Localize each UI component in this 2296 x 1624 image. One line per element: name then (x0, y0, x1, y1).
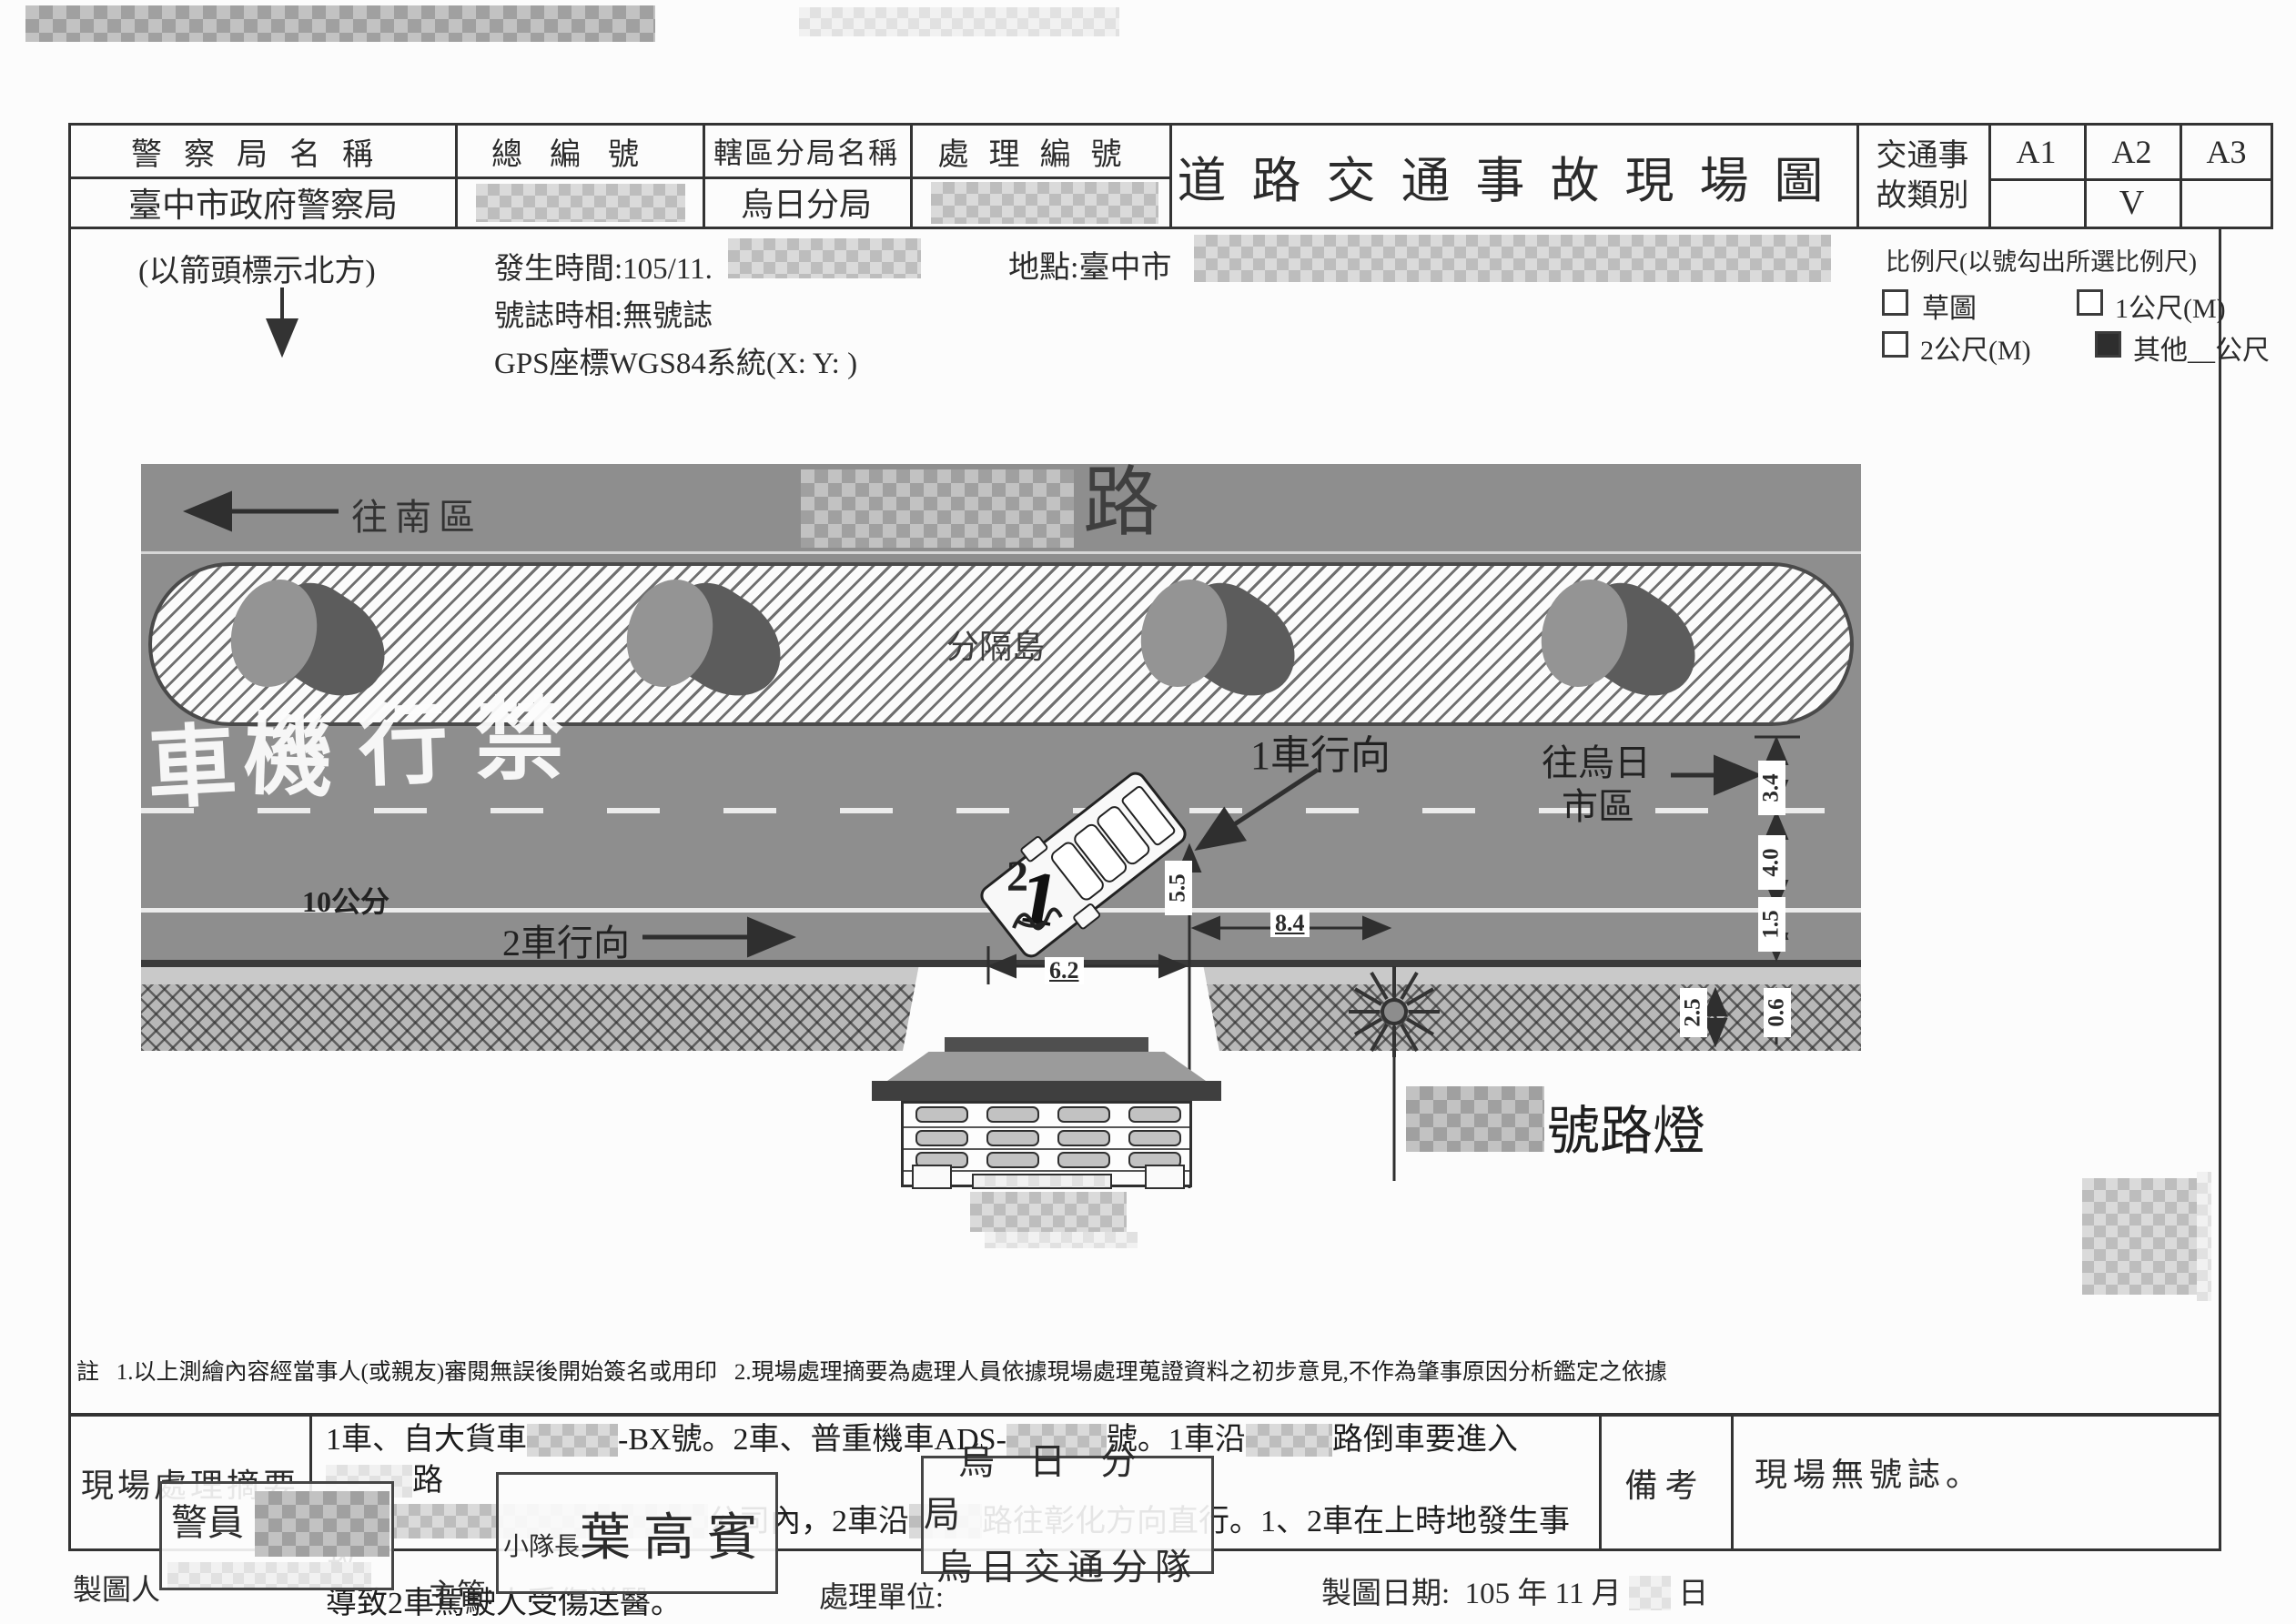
north-note: (以箭頭標示北方) (138, 246, 376, 290)
dim-3-4: 3.4 (1758, 761, 1785, 815)
north-arrow-icon (259, 286, 305, 369)
drafter-label: 製圖人 (73, 1567, 160, 1609)
drawing-date: 製圖日期: 105 年 11 月 日 (1321, 1569, 1708, 1612)
building-window (1057, 1106, 1110, 1123)
form-title: 道路交通事故現場圖 (1169, 126, 1856, 227)
seal-redaction-edge (2197, 1172, 2211, 1301)
lamp-starburst-icon (1349, 966, 1440, 1057)
building-window (1128, 1106, 1181, 1123)
building-sign-redaction (972, 1174, 1112, 1189)
note-item-2: 2.現場處理摘要為處理人員依據現場處理蒐證資料之初步意見,不作為肇事原因分析鑑定… (734, 1360, 1667, 1385)
signal-phase: 號誌時相:無號誌 (494, 291, 713, 335)
note-prefix: 註 (76, 1360, 99, 1385)
scale-sketch-checkbox (1882, 289, 1908, 316)
accident-scene-form: 警察局名稱 總編號 轄區分局名稱 處理編號 臺中市政府警察局 烏日分局 道路交通… (0, 0, 2296, 1624)
to-wuri-label-line2: 市區 (1562, 777, 1634, 830)
drafter-stamp-redaction-2 (167, 1562, 371, 1588)
lamp-label: 號路燈 (1547, 1088, 1705, 1165)
building-window (986, 1106, 1039, 1123)
building-roof-ridge (945, 1037, 1148, 1054)
scale-other-checkbox (2095, 331, 2121, 358)
building-window (1057, 1130, 1110, 1146)
note-item-1: 1.以上測繪內容經當事人(或親友)審閱無誤後開始簽名或用印 (116, 1360, 717, 1385)
dim-6-2: 6.2 (1045, 957, 1084, 984)
building-window (986, 1152, 1039, 1168)
occurrence-time: 發生時間:105/11. (494, 244, 713, 287)
seal-redaction (2082, 1178, 2197, 1295)
company-name-redaction (970, 1192, 1127, 1232)
scale-1m-checkbox (2077, 289, 2103, 316)
vehicle-2-scribble-icon (1008, 893, 1067, 937)
supervisor-stamp-name: 葉高賓 (580, 1497, 771, 1570)
police-bureau-value: 臺中市政府警察局 (71, 177, 455, 227)
branch-name-label: 轄區分局名稱 (703, 126, 910, 177)
building-window (986, 1130, 1039, 1146)
building-window (1128, 1130, 1181, 1146)
scale-2m-checkbox (1882, 331, 1908, 358)
veh2-direction-label: 2車行向 (502, 913, 630, 966)
top-left-redaction (25, 5, 655, 42)
note-line: 註 1.以上測繪內容經當事人(或親友)審閱無誤後開始簽名或用印 2.現場處理摘要… (76, 1354, 1667, 1387)
ten-cm-label: 10公分 (302, 879, 389, 921)
unit-stamp-line2: 烏日交通分隊 (936, 1541, 1199, 1594)
dim-8-4: 8.4 (1270, 910, 1310, 937)
building-floor-line (904, 1148, 1189, 1150)
case-no-redaction (931, 182, 1158, 224)
drafter-stamp-rank: 警員 (171, 1493, 244, 1546)
scale-title: 比例尺(以號勾出所選比例尺) (1886, 242, 2197, 277)
scale-sketch-label: 草圖 (1922, 286, 1977, 326)
accident-category-label: 交通事故類別 (1856, 126, 1988, 227)
building-window (915, 1130, 968, 1146)
time-redaction (728, 238, 921, 278)
dim-1-5: 1.5 (1758, 897, 1785, 952)
company-name-redaction-2 (985, 1232, 1138, 1248)
scale-2m-label: 2公尺(M) (1920, 328, 2031, 368)
scale-1m-label: 1公尺(M) (2115, 286, 2226, 326)
location-redaction (1194, 235, 1831, 282)
supervisor-label: 主管: (428, 1571, 494, 1613)
remark-label: 備考 (1599, 1417, 1731, 1549)
drawing-date-value: 105 年 11 月 (1465, 1578, 1622, 1610)
drawing-date-day-redaction (1629, 1576, 1671, 1610)
police-bureau-label: 警察局名稱 (71, 126, 455, 177)
drawing-date-suffix: 日 (1678, 1578, 1708, 1610)
serial-no-redaction (476, 184, 685, 222)
building-roof-slope (887, 1052, 1206, 1081)
header-table: 警察局名稱 總編號 轄區分局名稱 處理編號 臺中市政府警察局 烏日分局 道路交通… (68, 123, 2273, 229)
building-door (912, 1165, 952, 1189)
serial-no-label: 總編號 (455, 126, 703, 177)
building-window (915, 1106, 968, 1123)
top-center-redaction (799, 7, 1119, 36)
category-a2-label: A2 (2084, 126, 2180, 178)
branch-name-value: 烏日分局 (703, 177, 910, 227)
gps-coordinates: GPS座標WGS84系統(X: Y: ) (494, 338, 857, 382)
lamp-number-redaction (1406, 1086, 1544, 1152)
drafter-stamp-name-redaction (255, 1491, 389, 1557)
dim-5-5: 5.5 (1165, 861, 1192, 915)
dim-0-6: 0.6 (1764, 988, 1791, 1037)
category-a1-label: A1 (1988, 126, 2084, 178)
case-no-label: 處理編號 (910, 126, 1169, 177)
summary-table-top-border (68, 1413, 2221, 1417)
category-a2-mark: V (2084, 178, 2180, 227)
remark-value: 現場無號誌。 (1755, 1448, 1984, 1496)
processing-unit-label: 處理單位: (819, 1574, 944, 1616)
veh1-direction-label: 1車行向 (1250, 722, 1391, 781)
building-window (1057, 1152, 1110, 1168)
supervisor-stamp-rank: 小隊長 (503, 1527, 580, 1563)
scale-other-label: 其他__公尺 (2133, 328, 2270, 368)
dim-4-0: 4.0 (1758, 835, 1785, 890)
building-door (1145, 1165, 1185, 1189)
building-floor-line (904, 1126, 1189, 1128)
drafter-stamp: 警員 (159, 1481, 394, 1590)
supervisor-stamp: 小隊長 葉高賓 (496, 1472, 778, 1594)
dim-2-5: 2.5 (1680, 988, 1707, 1037)
veh1-direction-arrow-icon (1201, 770, 1318, 846)
category-a3-label: A3 (2180, 126, 2273, 178)
unit-stamp-line1: 烏日分局 (924, 1436, 1211, 1541)
location: 地點:臺中市 (1008, 242, 1171, 287)
building-roof-band (872, 1081, 1221, 1101)
unit-stamp: 烏日分局 烏日交通分隊 (921, 1456, 1214, 1574)
